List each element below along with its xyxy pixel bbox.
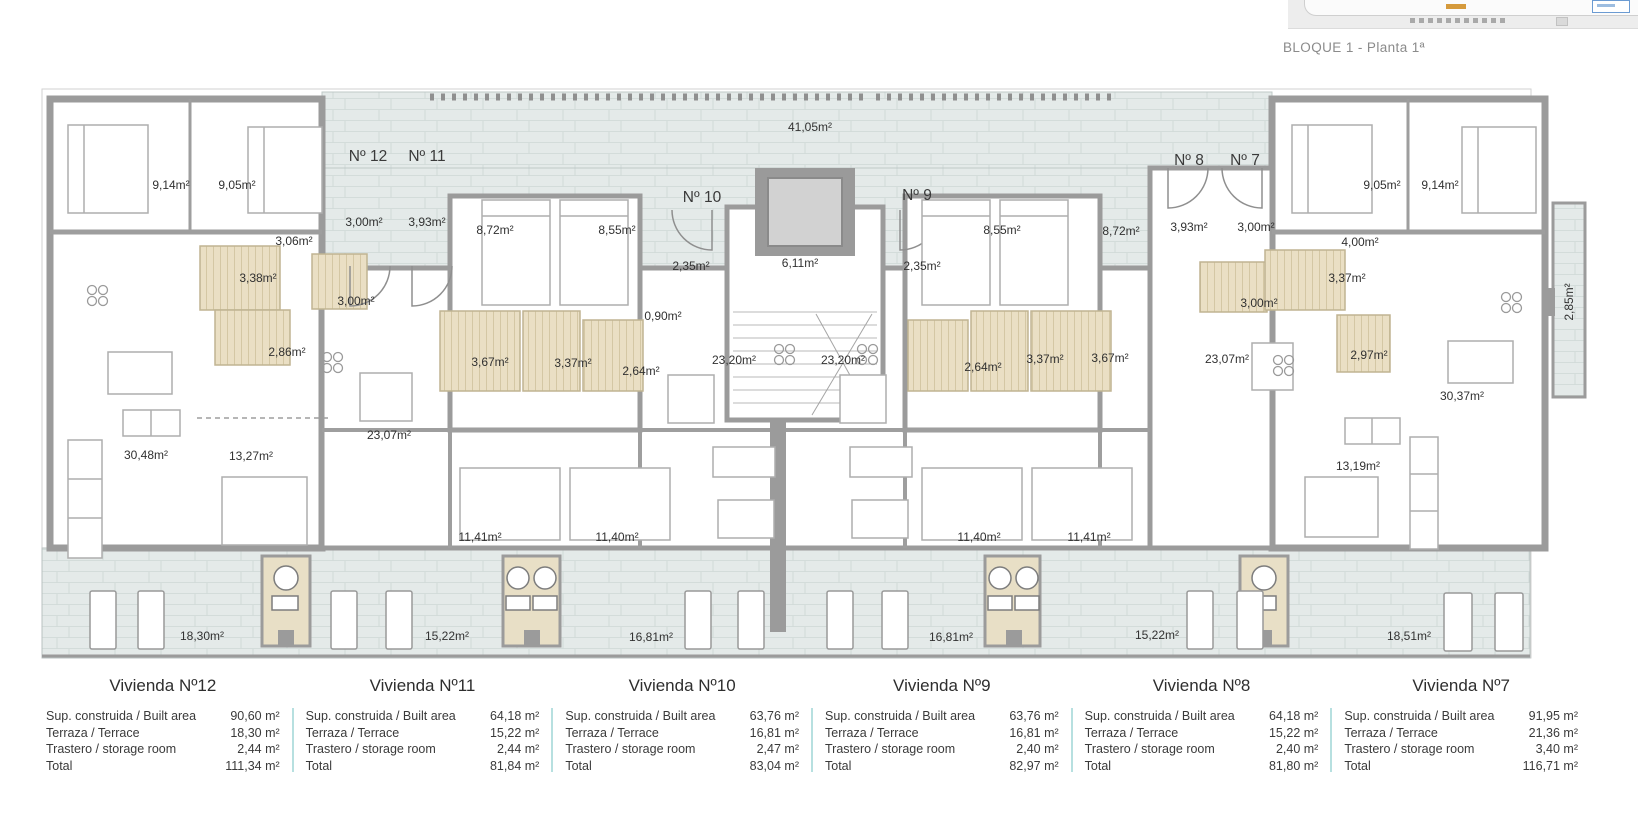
vivienda-table-row: Terraza / Terrace15,22 m²: [306, 725, 540, 742]
vivienda-table-row: Terraza / Terrace16,81 m²: [825, 725, 1059, 742]
vivienda-table-title: Vivienda Nº12: [46, 676, 280, 696]
vivienda-table-row: Trastero / storage room2,40 m²: [825, 741, 1059, 758]
vivienda-table-row: Terraza / Terrace16,81 m²: [565, 725, 799, 742]
row-value: 16,81 m²: [1009, 725, 1058, 742]
row-label: Terraza / Terrace: [1344, 725, 1438, 742]
row-value: 18,30 m²: [230, 725, 279, 742]
row-label: Terraza / Terrace: [825, 725, 919, 742]
vivienda-table-row: Total82,97 m²: [825, 758, 1059, 775]
vivienda-table-title: Vivienda Nº9: [825, 676, 1059, 696]
vivienda-table-row: Sup. construida / Built area63,76 m²: [565, 708, 799, 725]
row-label: Trastero / storage room: [1344, 741, 1474, 758]
row-label: Terraza / Terrace: [306, 725, 400, 742]
row-value: 2,44 m²: [237, 741, 279, 758]
elevator: [755, 168, 855, 256]
row-value: 116,71 m²: [1523, 758, 1578, 775]
vivienda-table-row: Sup. construida / Built area64,18 m²: [1085, 708, 1319, 725]
row-label: Total: [46, 758, 72, 775]
vivienda-table-row: Total81,84 m²: [306, 758, 540, 775]
row-value: 64,18 m²: [1269, 708, 1318, 725]
row-value: 16,81 m²: [750, 725, 799, 742]
vivienda-table: Vivienda Nº12Sup. construida / Built are…: [36, 676, 290, 774]
blue-outline-box: [1592, 0, 1630, 13]
vivienda-table-row: Total116,71 m²: [1344, 758, 1578, 775]
row-label: Terraza / Terrace: [1085, 725, 1179, 742]
vivienda-table-row: Trastero / storage room3,40 m²: [1344, 741, 1578, 758]
row-value: 15,22 m²: [1269, 725, 1318, 742]
row-label: Total: [1085, 758, 1111, 775]
row-label: Sup. construida / Built area: [306, 708, 456, 725]
vivienda-table-row: Sup. construida / Built area64,18 m²: [306, 708, 540, 725]
row-label: Trastero / storage room: [825, 741, 955, 758]
vivienda-table-row: Terraza / Terrace21,36 m²: [1344, 725, 1578, 742]
row-label: Terraza / Terrace: [46, 725, 140, 742]
row-label: Sup. construida / Built area: [46, 708, 196, 725]
row-label: Trastero / storage room: [46, 741, 176, 758]
row-label: Trastero / storage room: [306, 741, 436, 758]
row-label: Sup. construida / Built area: [1085, 708, 1235, 725]
vivienda-table-title: Vivienda Nº11: [306, 676, 540, 696]
row-value: 63,76 m²: [750, 708, 799, 725]
row-value: 3,40 m²: [1536, 741, 1578, 758]
tiny-control: [1556, 17, 1568, 26]
row-label: Sup. construida / Built area: [565, 708, 715, 725]
vivienda-table: Vivienda Nº8Sup. construida / Built area…: [1075, 676, 1329, 774]
row-label: Sup. construida / Built area: [825, 708, 975, 725]
vivienda-table-row: Sup. construida / Built area90,60 m²: [46, 708, 280, 725]
vivienda-table-row: Total83,04 m²: [565, 758, 799, 775]
vivienda-table: Vivienda Nº7Sup. construida / Built area…: [1334, 676, 1588, 774]
row-value: 15,22 m²: [490, 725, 539, 742]
vivienda-table-row: Terraza / Terrace18,30 m²: [46, 725, 280, 742]
row-label: Total: [306, 758, 332, 775]
row-value: 63,76 m²: [1009, 708, 1058, 725]
row-value: 21,36 m²: [1529, 725, 1578, 742]
vivienda-table-row: Trastero / storage room2,44 m²: [46, 741, 280, 758]
vivienda-table-title: Vivienda Nº10: [565, 676, 799, 696]
row-label: Trastero / storage room: [1085, 741, 1215, 758]
vivienda-table-row: Trastero / storage room2,40 m²: [1085, 741, 1319, 758]
row-label: Sup. construida / Built area: [1344, 708, 1494, 725]
row-label: Terraza / Terrace: [565, 725, 659, 742]
row-value: 2,44 m²: [497, 741, 539, 758]
row-value: 83,04 m²: [750, 758, 799, 775]
vivienda-table-row: Total111,34 m²: [46, 758, 280, 775]
orange-text-mark: [1446, 4, 1466, 9]
row-value: 91,95 m²: [1529, 708, 1578, 725]
row-value: 82,97 m²: [1009, 758, 1058, 775]
row-label: Trastero / storage room: [565, 741, 695, 758]
vivienda-table-row: Sup. construida / Built area63,76 m²: [825, 708, 1059, 725]
vivienda-table: Vivienda Nº11Sup. construida / Built are…: [296, 676, 550, 774]
vivienda-table-row: Terraza / Terrace15,22 m²: [1085, 725, 1319, 742]
vivienda-table-row: Trastero / storage room2,47 m²: [565, 741, 799, 758]
cropped-window-fragment: [1288, 0, 1638, 29]
row-label: Total: [825, 758, 851, 775]
row-value: 2,40 m²: [1016, 741, 1058, 758]
row-value: 2,47 m²: [757, 741, 799, 758]
row-value: 81,84 m²: [490, 758, 539, 775]
row-label: Total: [565, 758, 591, 775]
cropped-panel: [1304, 0, 1638, 16]
vivienda-table-title: Vivienda Nº7: [1344, 676, 1578, 696]
row-value: 81,80 m²: [1269, 758, 1318, 775]
side-balcony: [1553, 203, 1585, 397]
row-value: 111,34 m²: [225, 758, 279, 775]
row-value: 64,18 m²: [490, 708, 539, 725]
vivienda-tables: Vivienda Nº12Sup. construida / Built are…: [36, 676, 1588, 774]
vivienda-table-row: Total81,80 m²: [1085, 758, 1319, 775]
floorplan-page: BLOQUE 1 - Planta 1ª 41,05m²9,14m²9,05m²…: [0, 0, 1638, 840]
vivienda-table-row: Trastero / storage room2,44 m²: [306, 741, 540, 758]
vivienda-table-row: Sup. construida / Built area91,95 m²: [1344, 708, 1578, 725]
illegible-caption: [1410, 18, 1506, 23]
plan-title: BLOQUE 1 - Planta 1ª: [1283, 40, 1425, 55]
row-value: 90,60 m²: [230, 708, 279, 725]
vivienda-table: Vivienda Nº10Sup. construida / Built are…: [555, 676, 809, 774]
vivienda-table: Vivienda Nº9Sup. construida / Built area…: [815, 676, 1069, 774]
row-value: 2,40 m²: [1276, 741, 1318, 758]
vivienda-table-title: Vivienda Nº8: [1085, 676, 1319, 696]
row-label: Total: [1344, 758, 1370, 775]
